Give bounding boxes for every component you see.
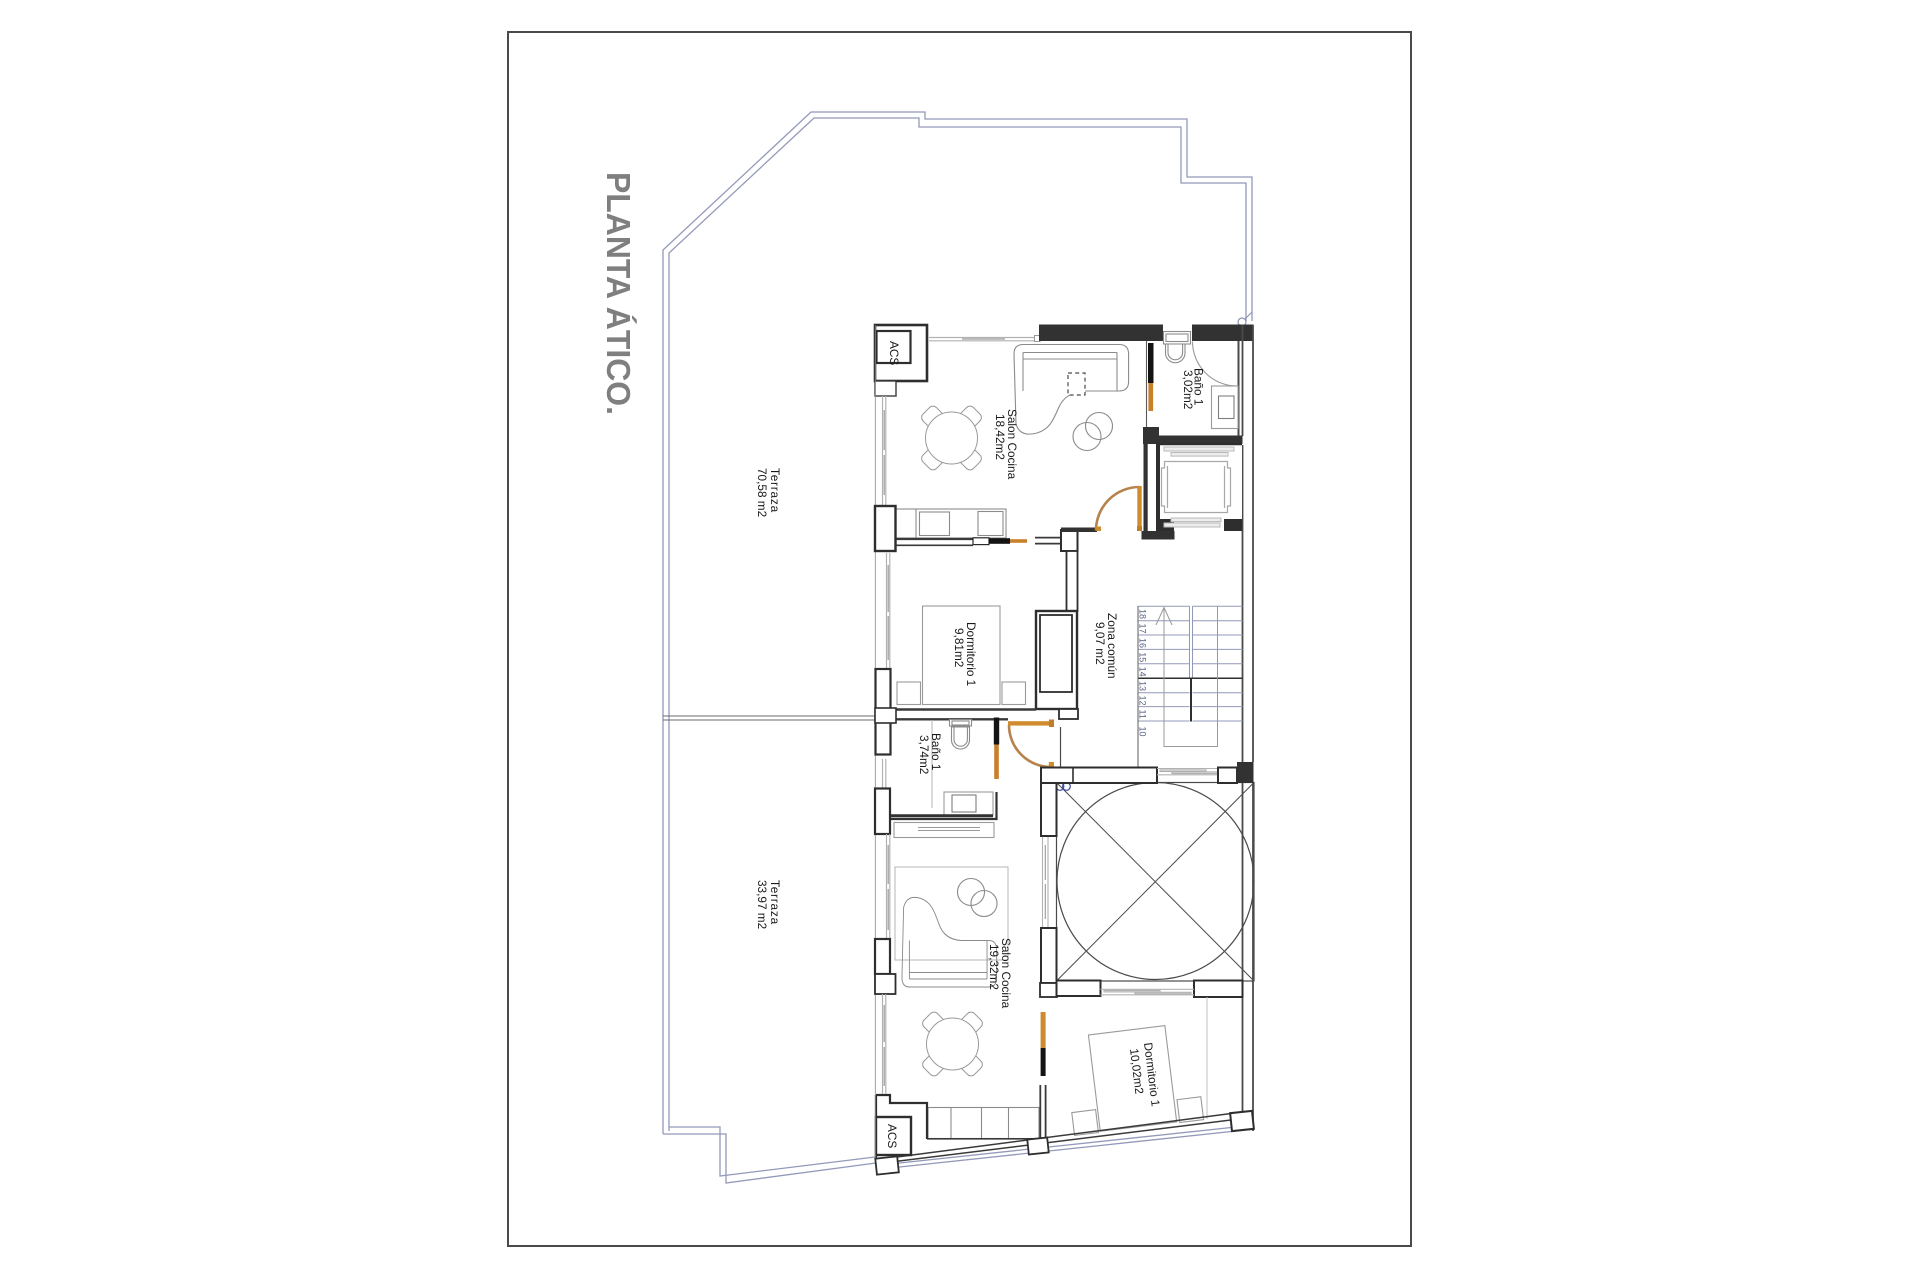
svg-text:14: 14: [1138, 667, 1148, 677]
svg-text:10: 10: [1138, 727, 1148, 737]
svg-text:18: 18: [1138, 609, 1148, 619]
svg-text:11: 11: [1138, 710, 1148, 719]
svg-text:PLANTA ÁTICO.: PLANTA ÁTICO.: [600, 172, 637, 415]
svg-text:12: 12: [1138, 696, 1148, 706]
svg-text:18,42m2: 18,42m2: [993, 414, 1007, 460]
svg-text:16: 16: [1138, 638, 1148, 648]
svg-text:33,97 m2: 33,97 m2: [755, 880, 769, 929]
svg-text:19,32m2: 19,32m2: [987, 944, 1001, 990]
svg-text:3,02m2: 3,02m2: [1181, 370, 1195, 409]
svg-text:9,81m2: 9,81m2: [952, 628, 966, 667]
svg-text:17: 17: [1138, 624, 1148, 634]
svg-text:9,07 m2: 9,07 m2: [1093, 622, 1107, 665]
svg-text:ACS: ACS: [887, 341, 901, 365]
svg-text:70,58 m2: 70,58 m2: [755, 468, 769, 517]
svg-text:15: 15: [1138, 652, 1148, 662]
svg-text:Terraza: Terraza: [768, 468, 782, 513]
svg-text:13: 13: [1138, 681, 1148, 691]
svg-text:ACS: ACS: [885, 1124, 899, 1148]
svg-text:Terraza: Terraza: [768, 880, 782, 925]
svg-text:3,74m2: 3,74m2: [917, 735, 931, 774]
